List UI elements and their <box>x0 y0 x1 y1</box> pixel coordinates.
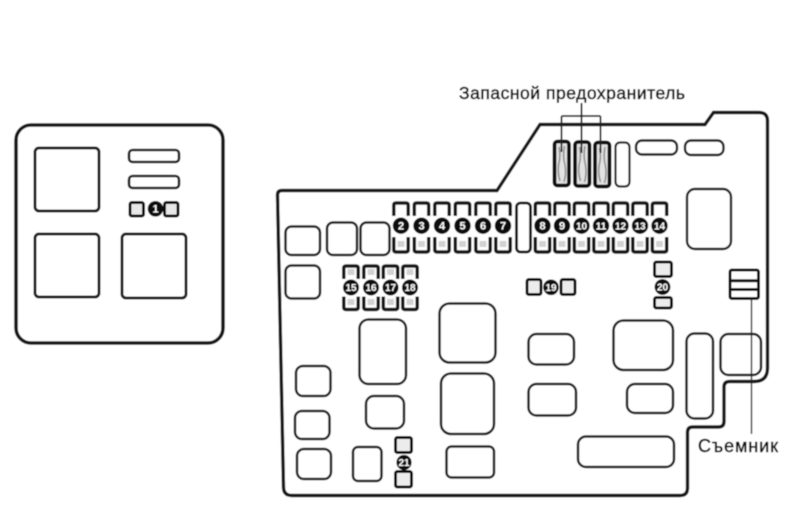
svg-text:13: 13 <box>634 221 646 232</box>
svg-text:7: 7 <box>500 221 506 233</box>
svg-text:8: 8 <box>539 221 545 233</box>
svg-text:11: 11 <box>596 221 607 232</box>
svg-text:5: 5 <box>459 221 465 233</box>
svg-text:Запасной предохранитель: Запасной предохранитель <box>459 83 685 103</box>
svg-text:6: 6 <box>480 221 486 233</box>
svg-text:12: 12 <box>615 221 627 232</box>
svg-text:1: 1 <box>152 204 158 216</box>
svg-text:10: 10 <box>576 221 588 232</box>
svg-text:3: 3 <box>418 221 424 233</box>
svg-text:20: 20 <box>657 283 669 294</box>
svg-text:9: 9 <box>559 221 565 233</box>
svg-text:18: 18 <box>404 283 416 294</box>
svg-text:Съемник: Съемник <box>698 436 778 456</box>
svg-text:15: 15 <box>345 283 357 294</box>
svg-text:2: 2 <box>398 221 404 233</box>
svg-text:21: 21 <box>398 458 410 469</box>
svg-text:19: 19 <box>545 283 557 294</box>
svg-text:16: 16 <box>365 283 377 294</box>
svg-text:14: 14 <box>654 221 666 232</box>
svg-text:17: 17 <box>385 283 397 294</box>
svg-text:4: 4 <box>439 221 446 233</box>
